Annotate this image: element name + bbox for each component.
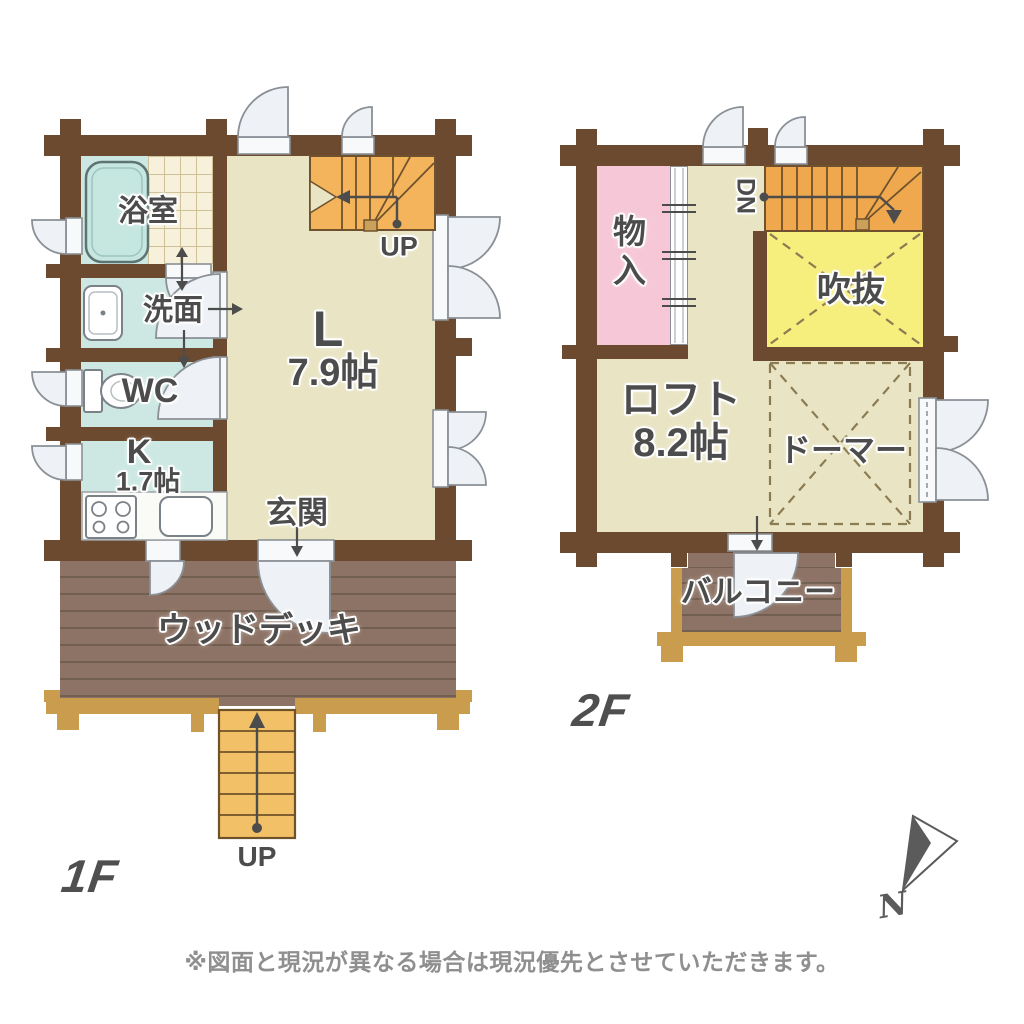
floor2-title: 2F — [569, 683, 632, 737]
wall-top-2f — [576, 145, 944, 166]
wall-right-2f — [923, 145, 944, 553]
deck-frame-stub — [456, 690, 472, 702]
deck-post — [437, 714, 459, 730]
balcony-rail-right — [841, 568, 852, 632]
washroom-label: 洗面 — [143, 296, 203, 326]
deck-frame-stub — [44, 690, 60, 702]
disclaimer-text: ※図面と現況が異なる場合は現況優先とさせていただきます。 — [184, 943, 839, 977]
deck-frame-band-left — [46, 698, 219, 714]
entrance-label: 玄関 — [266, 498, 328, 529]
log-end — [46, 264, 60, 278]
kitchen-label: K — [127, 435, 152, 469]
partition — [213, 338, 227, 357]
bathroom-label: 浴室 — [118, 197, 178, 227]
window-swing — [342, 107, 372, 137]
partition — [81, 264, 168, 278]
wall-right — [435, 135, 456, 561]
log-end — [923, 553, 944, 567]
log-end — [560, 145, 576, 166]
sliding-door — [670, 166, 688, 345]
wall-stub-between-windows — [748, 128, 768, 145]
loft-size-label: 8.2帖 — [633, 423, 729, 463]
partition — [753, 347, 923, 361]
partition — [576, 345, 688, 359]
loft-label: ロフト — [621, 380, 741, 420]
wall-left — [60, 135, 81, 561]
living-label: L — [313, 304, 344, 354]
log-end — [944, 336, 958, 352]
balcony-post — [661, 646, 683, 662]
balcony-side-wall — [671, 553, 687, 567]
living-size-label: 7.9帖 — [288, 354, 379, 392]
balcony-side-wall — [836, 553, 852, 567]
log-end — [560, 532, 576, 553]
dormer-label: ドーマー — [779, 434, 907, 466]
log-end — [435, 119, 456, 135]
wall-top — [60, 135, 456, 156]
log-end — [456, 338, 472, 356]
log-end — [46, 348, 60, 362]
log-end — [576, 553, 597, 567]
wall-bottom — [60, 540, 456, 561]
log-end — [46, 427, 60, 441]
deck-frame-band-right — [295, 698, 470, 714]
balcony-frame-band — [657, 632, 866, 646]
log-end — [60, 119, 81, 135]
log-end — [456, 135, 472, 156]
balcony-post — [835, 646, 857, 662]
log-end — [944, 532, 960, 553]
partition — [213, 419, 227, 540]
log-end — [562, 345, 576, 359]
wc-label: WC — [122, 374, 179, 408]
floor1-title: 1F — [58, 849, 121, 903]
stairs-up-label: UP — [380, 234, 418, 261]
balcony-label: バルコニー — [681, 577, 835, 608]
log-end — [456, 540, 472, 561]
log-end — [944, 145, 960, 166]
partition — [213, 156, 227, 272]
log-end — [576, 129, 597, 145]
log-end — [44, 135, 60, 156]
balcony-floor — [688, 553, 835, 568]
entry-steps-up-label: UP — [238, 843, 277, 871]
wall-bottom-2f — [576, 532, 944, 553]
deck-post — [191, 714, 204, 732]
wood-deck-label: ウッドデッキ — [157, 613, 361, 647]
log-end — [206, 119, 227, 135]
deck-entry-steps — [219, 710, 295, 838]
kitchen-size-label: 1.7帖 — [116, 469, 181, 496]
floor-plan-canvas: 浴室 洗面 WC K 1.7帖 L 7.9帖 玄関 ウッドデッキ UP UP 1… — [0, 0, 1024, 1024]
storage-label: 物入 — [611, 214, 644, 292]
log-end — [44, 540, 60, 561]
north-label: N — [875, 884, 910, 927]
partition — [753, 231, 767, 361]
deck-post — [57, 714, 79, 730]
window-swing — [703, 107, 743, 147]
door-swing — [238, 87, 288, 137]
deck-post — [313, 714, 326, 732]
partition — [81, 348, 213, 362]
north-compass-icon — [903, 816, 957, 890]
log-end — [923, 129, 944, 145]
stairs-down-label: DN — [733, 178, 758, 214]
atrium-void-label: 吹抜 — [817, 273, 885, 307]
window-swing — [775, 117, 805, 147]
